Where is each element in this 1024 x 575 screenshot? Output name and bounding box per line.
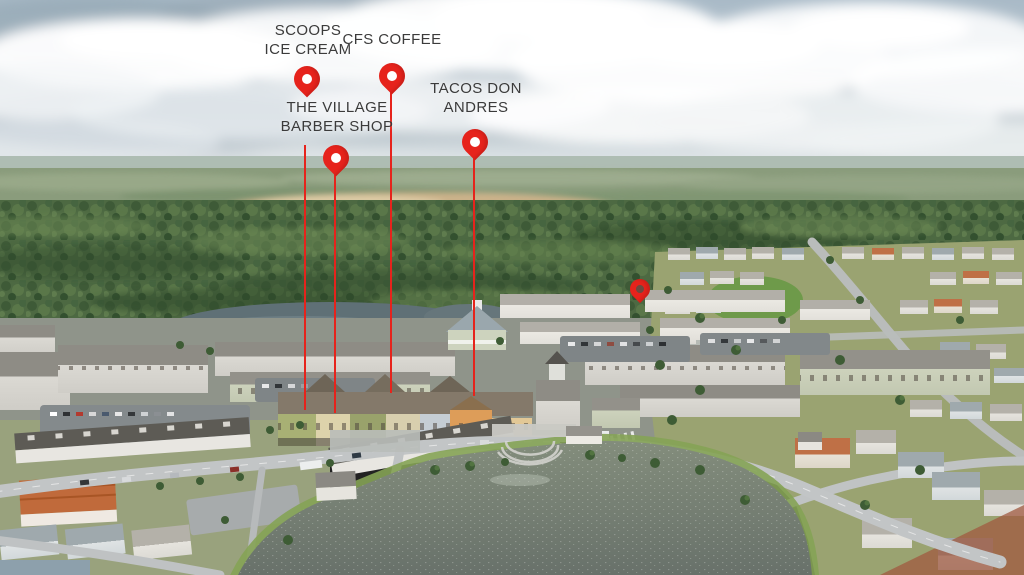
marker-label-line2: BARBER SHOP [262, 117, 412, 136]
map-pin-village-barber [318, 140, 355, 177]
marker-label-tacos: TACOS DON ANDRES [401, 79, 551, 117]
marker-line-tacos [473, 158, 475, 396]
marker-label-cfs: CFS COFFEE [317, 30, 467, 49]
aerial-photo: SCOOPS ICE CREAM CFS COFFEE THE VILLAGE … [0, 0, 1024, 575]
marker-label-line2: ANDRES [401, 98, 551, 117]
marker-label-line1: TACOS DON [401, 79, 551, 98]
marker-line-cfs [390, 92, 392, 393]
marker-line-scoops [304, 145, 306, 410]
marker-label-line1: THE VILLAGE [262, 98, 412, 117]
pin-dot [385, 69, 399, 83]
marker-overlay: SCOOPS ICE CREAM CFS COFFEE THE VILLAGE … [0, 0, 1024, 575]
map-pin-scoops [289, 61, 326, 98]
map-pin-unlabeled [626, 275, 654, 303]
marker-label-line1: CFS COFFEE [317, 30, 467, 49]
pin-dot [329, 151, 343, 165]
pin-dot [300, 72, 314, 86]
pin-dot [468, 135, 482, 149]
marker-label-village-barber: THE VILLAGE BARBER SHOP [262, 98, 412, 136]
pin-dot [634, 283, 645, 294]
map-pin-tacos [457, 124, 494, 161]
marker-line-village [334, 174, 336, 413]
